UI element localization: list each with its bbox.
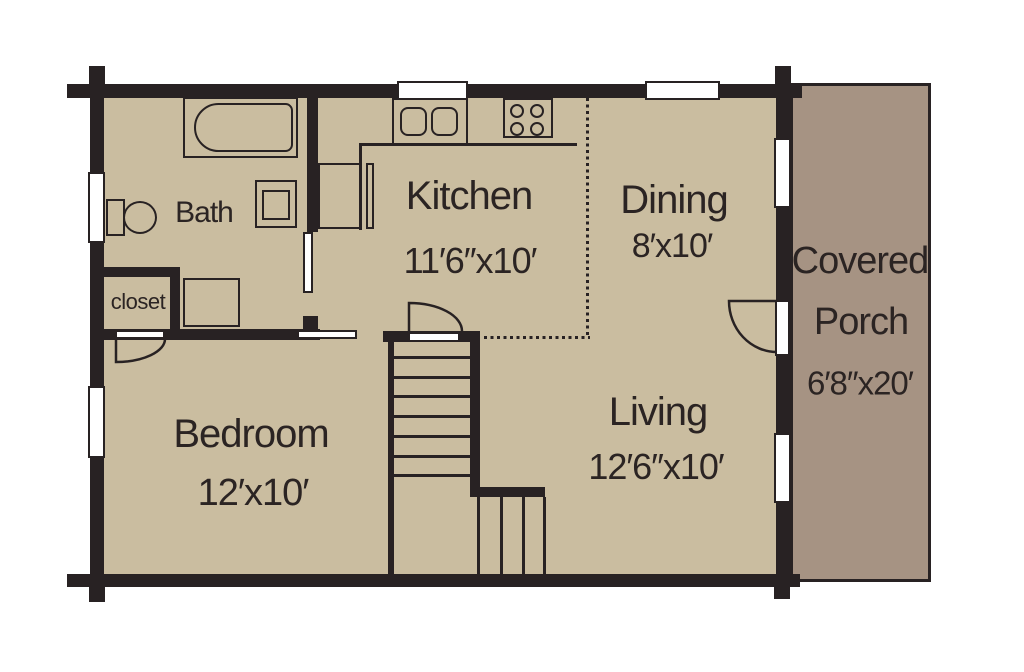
bathtub-basin — [194, 103, 293, 152]
stair-tread — [394, 474, 470, 477]
exterior-wall-bottom — [90, 574, 800, 587]
door-bath-leaf — [303, 232, 313, 293]
divider-dotted-kitchen-dining — [586, 98, 589, 338]
door-kitchen-stairs — [408, 332, 460, 342]
toilet-bowl — [123, 201, 157, 234]
stair-tread — [394, 415, 470, 418]
stove-burner — [530, 122, 544, 136]
stove-burner — [510, 122, 524, 136]
log-end-bottom-right-down — [774, 586, 790, 599]
label-kitchen-dims: 11′6″x10′ — [404, 243, 537, 279]
floor-plan-canvas: Bath closet Kitchen 11′6″x10′ Dining 8′x… — [0, 0, 1024, 672]
window-dining — [645, 81, 720, 100]
interior-wall-stair-right — [470, 331, 480, 497]
stair-tread — [394, 395, 470, 398]
label-porch-dims: 6′8″x20′ — [807, 367, 913, 400]
door-porch — [775, 300, 790, 356]
stair-tread — [522, 497, 525, 574]
stair-tread — [500, 497, 503, 574]
refrigerator-fixture — [318, 163, 362, 229]
counter-end-edge — [359, 143, 362, 230]
door-bedroom-leaf — [297, 330, 357, 339]
interior-wall-stair-turn — [470, 487, 545, 497]
label-kitchen: Kitchen — [406, 176, 532, 216]
log-end-top-right-out — [790, 84, 802, 98]
interior-wall-bath-stub — [303, 316, 318, 330]
log-end-bottom-left-out — [67, 574, 91, 587]
refrigerator-door — [366, 163, 374, 229]
sink-basin-right — [431, 107, 458, 136]
vanity-sink-basin — [262, 190, 290, 220]
label-bedroom-dims: 12′x10′ — [198, 474, 309, 512]
sink-basin-left — [400, 107, 427, 136]
log-end-top-left-up — [89, 66, 105, 86]
stair-tread — [543, 497, 546, 574]
label-porch-line2: Porch — [814, 303, 908, 341]
stair-tread — [394, 376, 470, 379]
interior-wall-closet-top — [104, 267, 180, 277]
label-living: Living — [609, 392, 708, 432]
label-closet: closet — [111, 291, 165, 313]
divider-dotted-kitchen-living — [484, 336, 590, 339]
stair-tread — [477, 497, 480, 574]
log-end-top-right-up — [775, 66, 791, 86]
interior-wall-closet-right — [170, 267, 180, 340]
stove-burner — [510, 104, 524, 118]
label-living-dims: 12′6″x10′ — [588, 449, 723, 485]
stair-tread — [394, 356, 470, 359]
label-dining-dims: 8′x10′ — [632, 229, 712, 263]
log-end-bottom-left-down — [89, 586, 105, 602]
window-dining-porch — [774, 138, 791, 208]
linen-cabinet-fixture — [183, 278, 240, 327]
stair-tread — [394, 455, 470, 458]
label-porch-line1: Covered — [792, 242, 929, 280]
label-bedroom: Bedroom — [173, 414, 328, 454]
window-bath — [88, 172, 105, 243]
label-dining: Dining — [620, 180, 727, 220]
window-kitchen — [397, 81, 468, 100]
label-bath: Bath — [175, 198, 233, 228]
exterior-wall-left — [90, 84, 104, 587]
stair-tread — [394, 435, 470, 438]
door-closet — [115, 330, 165, 339]
stove-burner — [530, 104, 544, 118]
log-end-top-left-out — [67, 84, 91, 98]
interior-wall-bath-right — [307, 98, 318, 232]
window-bedroom — [88, 386, 105, 458]
window-living-porch — [774, 433, 791, 503]
